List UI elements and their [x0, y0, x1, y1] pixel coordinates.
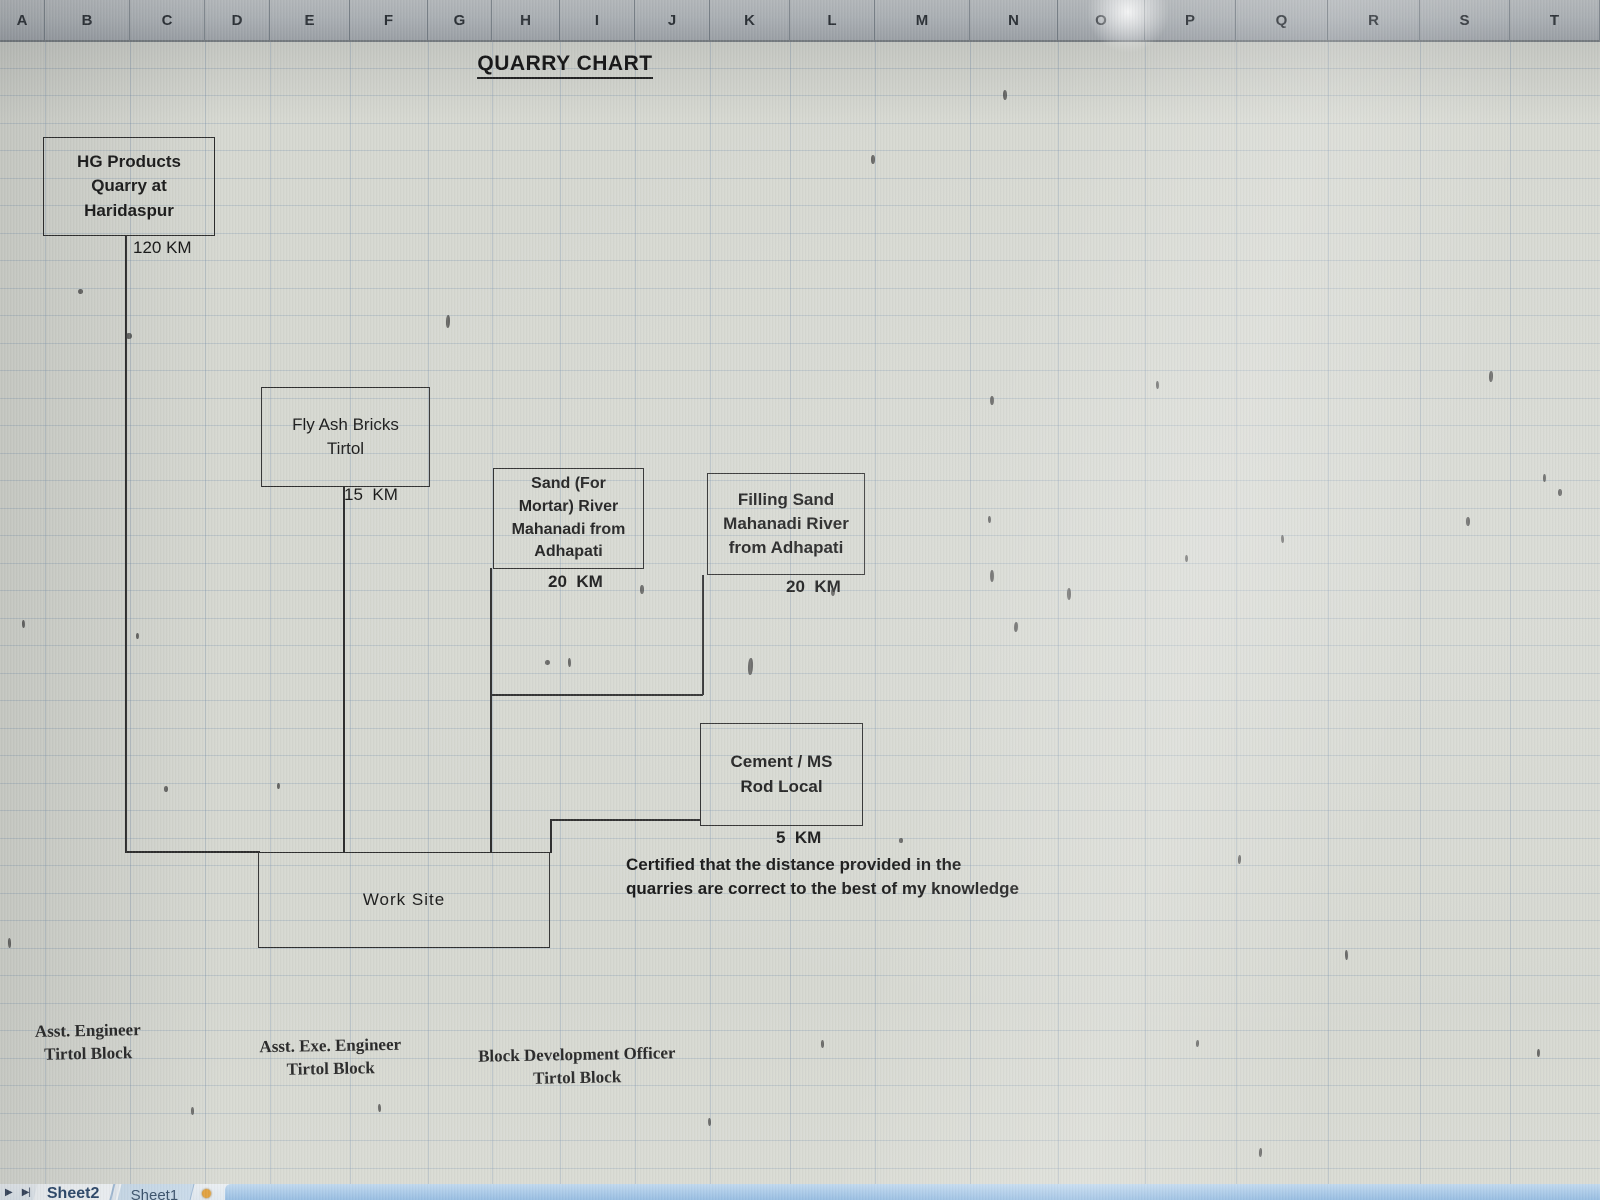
distance-label-flyash: 15 KM — [344, 485, 398, 505]
column-header-Q[interactable]: Q — [1236, 0, 1328, 40]
gridline-horizontal — [0, 453, 1600, 454]
connector-line-worksite-step — [550, 819, 552, 853]
distance-label-cement: 5 KM — [776, 828, 821, 848]
tab-bar-scroll-strip — [225, 1184, 1600, 1200]
box-text-line: Tirtol — [327, 437, 364, 461]
column-header-row: ABCDEFGHIJKLMNOPQRST — [0, 0, 1600, 42]
signature-block-development-officer: Block Development Officer Tirtol Block — [462, 1042, 693, 1092]
signature-asst-engineer: Asst. Engineer Tirtol Block — [18, 1019, 159, 1067]
box-text-line: Adhapati — [534, 541, 602, 564]
gridline-horizontal — [0, 1168, 1600, 1169]
box-text-line: Filling Sand — [738, 488, 834, 512]
photo-artifact-speck — [136, 633, 139, 639]
quarry-box-filling-sand[interactable]: Filling Sand Mahanadi River from Adhapat… — [707, 473, 865, 575]
gridline-vertical — [350, 40, 351, 1185]
photo-artifact-speck — [640, 585, 644, 594]
photo-artifact-speck — [990, 570, 994, 582]
photo-artifact-speck — [1345, 950, 1348, 960]
connector-line-flyash-down — [343, 487, 345, 853]
column-header-A[interactable]: A — [0, 0, 45, 40]
connector-line-cement-to-worksite — [550, 819, 701, 821]
signature-title: Asst. Exe. Engineer — [248, 1034, 413, 1060]
column-header-R[interactable]: R — [1328, 0, 1420, 40]
photo-artifact-speck — [1259, 1148, 1262, 1157]
box-text-line: Rod Local — [740, 775, 822, 799]
connector-line-filling-down — [702, 575, 704, 695]
gridline-horizontal — [0, 150, 1600, 151]
column-header-M[interactable]: M — [875, 0, 970, 40]
gridline-horizontal — [0, 315, 1600, 316]
connector-line-sand-bottom — [490, 694, 703, 696]
photo-artifact-speck — [899, 838, 903, 843]
gridline-horizontal — [0, 288, 1600, 289]
photo-artifact-speck — [1003, 90, 1007, 100]
box-text-line: Work Site — [363, 888, 445, 912]
photo-artifact-speck — [22, 620, 25, 628]
gridline-vertical — [790, 40, 791, 1185]
gridline-horizontal — [0, 260, 1600, 261]
gridline-vertical — [270, 40, 271, 1185]
box-text-line: Mahanadi from — [512, 519, 626, 542]
chart-title: QUARRY CHART — [450, 52, 680, 79]
gridline-horizontal — [0, 123, 1600, 124]
column-header-B[interactable]: B — [45, 0, 130, 40]
gridline-vertical — [1145, 40, 1146, 1185]
photo-vignette-overlay — [0, 0, 1600, 1200]
gridline-vertical — [875, 40, 876, 1185]
box-text-line: Fly Ash Bricks — [292, 413, 399, 437]
gridline-vertical — [1236, 40, 1237, 1185]
column-header-D[interactable]: D — [205, 0, 270, 40]
box-text-line: Mahanadi River — [723, 512, 849, 536]
photo-artifact-speck — [1014, 622, 1019, 632]
box-text-line: HG Products — [77, 150, 181, 174]
photo-artifact-speck — [1238, 855, 1241, 864]
column-header-K[interactable]: K — [710, 0, 790, 40]
gridline-horizontal — [0, 920, 1600, 921]
signature-title: Asst. Engineer — [18, 1019, 158, 1044]
distance-label-hg: 120 KM — [133, 238, 192, 258]
photo-artifact-speck — [988, 516, 991, 523]
gridline-horizontal — [0, 233, 1600, 234]
lcd-texture-overlay — [0, 0, 1600, 1200]
gridline-horizontal — [0, 618, 1600, 619]
photo-artifact-speck — [821, 1040, 824, 1048]
column-header-C[interactable]: C — [130, 0, 205, 40]
sheet-nav-next-icon[interactable]: ▶ — [0, 1184, 17, 1198]
gridline-horizontal — [0, 975, 1600, 976]
sheet-tab-label: Sheet2 — [47, 1185, 99, 1200]
photo-artifact-speck — [1156, 381, 1159, 389]
gridline-vertical — [1328, 40, 1329, 1185]
gridline-horizontal — [0, 1140, 1600, 1141]
box-text-line: Cement / MS — [730, 750, 832, 774]
column-header-I[interactable]: I — [560, 0, 635, 40]
box-text-line: Sand (For — [531, 473, 606, 496]
gridline-vertical — [710, 40, 711, 1185]
connector-line-hg-to-worksite — [125, 851, 260, 853]
gridline-horizontal — [0, 645, 1600, 646]
gridline-horizontal — [0, 68, 1600, 69]
gridline-horizontal — [0, 398, 1600, 399]
photo-artifact-speck — [545, 660, 550, 665]
photo-artifact-speck — [871, 155, 875, 164]
gridline-horizontal — [0, 205, 1600, 206]
photo-artifact-speck — [1281, 535, 1284, 543]
gridline-vertical — [635, 40, 636, 1185]
photo-artifact-speck — [1558, 489, 1562, 496]
column-header-J[interactable]: J — [635, 0, 710, 40]
insert-worksheet-icon[interactable] — [202, 1189, 211, 1198]
gridline-vertical — [1420, 40, 1421, 1185]
connector-line-sand-down — [490, 568, 492, 853]
box-text-line: Mortar) River — [519, 496, 619, 519]
photo-artifact-speck — [1466, 517, 1470, 526]
gridline-horizontal — [0, 370, 1600, 371]
connector-line-hg-down — [125, 236, 127, 853]
box-text-line: Haridaspur — [84, 199, 174, 223]
gridline-horizontal — [0, 948, 1600, 949]
certification-note: Certified that the distance provided in … — [626, 853, 1024, 901]
signature-org: Tirtol Block — [248, 1056, 413, 1082]
column-header-S[interactable]: S — [1420, 0, 1510, 40]
signature-asst-exe-engineer: Asst. Exe. Engineer Tirtol Block — [248, 1034, 414, 1083]
photo-artifact-speck — [1185, 555, 1188, 562]
signature-org: Tirtol Block — [462, 1065, 692, 1092]
photo-artifact-speck — [277, 783, 280, 789]
column-header-P[interactable]: P — [1145, 0, 1236, 40]
gridline-vertical — [1058, 40, 1059, 1185]
work-site-box[interactable]: Work Site — [258, 852, 550, 948]
column-header-O[interactable]: O — [1058, 0, 1145, 40]
photo-artifact-speck — [1067, 588, 1071, 600]
photo-artifact-speck — [708, 1118, 711, 1126]
gridline-horizontal — [0, 95, 1600, 96]
sheet-tab-sheet2[interactable]: Sheet2 — [33, 1184, 116, 1200]
quarry-box-cement-ms-rod[interactable]: Cement / MS Rod Local — [700, 723, 863, 826]
distance-label-sand: 20 KM — [548, 572, 603, 592]
box-text-line: from Adhapati — [729, 536, 844, 560]
signature-title: Block Development Officer — [462, 1042, 692, 1069]
gridline-vertical — [1510, 40, 1511, 1185]
gridline-horizontal — [0, 1085, 1600, 1086]
sheet-nav-last-icon[interactable]: ▶| — [17, 1184, 35, 1198]
photo-artifact-speck — [1537, 1049, 1540, 1057]
photo-glare-overlay — [0, 0, 1600, 1200]
gridline-horizontal — [0, 1058, 1600, 1059]
photo-artifact-speck — [568, 658, 571, 667]
photo-artifact-speck — [446, 315, 450, 328]
photo-artifact-speck — [191, 1107, 194, 1115]
sheet-tab-sheet1[interactable]: Sheet1 — [115, 1184, 195, 1200]
photo-artifact-speck — [378, 1104, 381, 1112]
photo-artifact-speck — [990, 396, 994, 405]
gridline-vertical — [560, 40, 561, 1185]
photo-artifact-speck — [8, 938, 11, 948]
gridline-vertical — [970, 40, 971, 1185]
box-text-line: Quarry at — [91, 174, 167, 198]
photo-artifact-speck — [1543, 474, 1546, 482]
photo-artifact-speck — [78, 289, 83, 294]
quarry-box-hg-products[interactable]: HG Products Quarry at Haridaspur — [43, 137, 215, 236]
quarry-box-fly-ash-bricks[interactable]: Fly Ash Bricks Tirtol — [261, 387, 430, 487]
signature-org: Tirtol Block — [18, 1042, 158, 1067]
column-header-L[interactable]: L — [790, 0, 875, 40]
gridline-vertical — [492, 40, 493, 1185]
photo-artifact-speck — [1489, 371, 1493, 382]
gridline-horizontal — [0, 178, 1600, 179]
gridline-horizontal — [0, 1003, 1600, 1004]
photo-artifact-speck — [1196, 1040, 1199, 1047]
sheet-tab-bar: ▶ ▶| Sheet2 Sheet1 — [0, 1184, 1600, 1200]
column-header-G[interactable]: G — [428, 0, 492, 40]
gridline-horizontal — [0, 1113, 1600, 1114]
gridline-vertical — [428, 40, 429, 1185]
column-header-E[interactable]: E — [270, 0, 350, 40]
sheet-tab-label: Sheet1 — [131, 1187, 179, 1200]
photo-artifact-speck — [126, 333, 132, 339]
gridline-horizontal — [0, 425, 1600, 426]
spreadsheet-photo: ABCDEFGHIJKLMNOPQRST QUARRY CHART HG Pro… — [0, 0, 1600, 1200]
gridline-horizontal — [0, 1030, 1600, 1031]
gridline-horizontal — [0, 700, 1600, 701]
column-header-H[interactable]: H — [492, 0, 560, 40]
column-header-F[interactable]: F — [350, 0, 428, 40]
quarry-box-sand-mortar[interactable]: Sand (For Mortar) River Mahanadi from Ad… — [493, 468, 644, 569]
photo-artifact-speck — [164, 786, 168, 792]
column-header-N[interactable]: N — [970, 0, 1058, 40]
column-header-T[interactable]: T — [1510, 0, 1600, 40]
gridline-horizontal — [0, 343, 1600, 344]
gridline-horizontal — [0, 673, 1600, 674]
